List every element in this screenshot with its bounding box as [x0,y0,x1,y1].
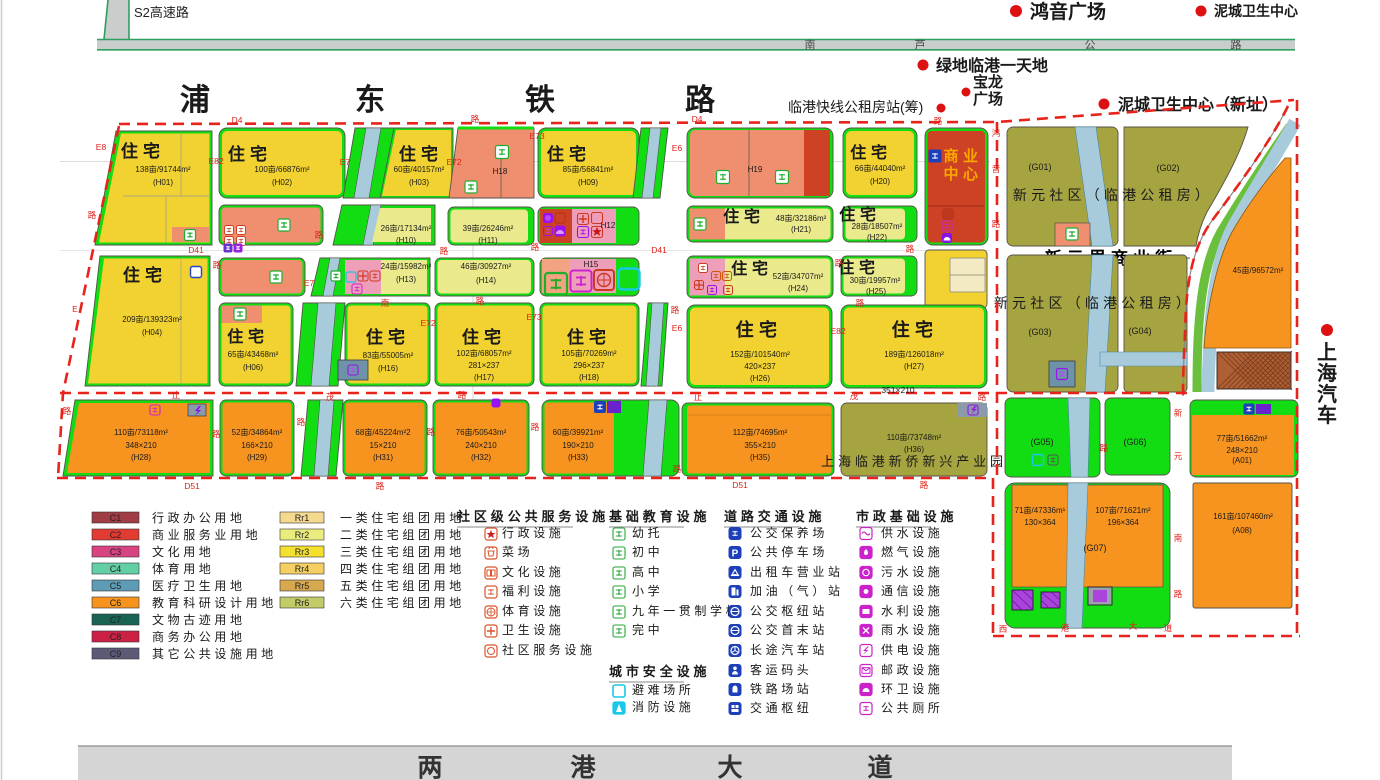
svg-text:城市安全设施: 城市安全设施 [609,664,710,679]
svg-text:中心: 中心 [943,165,982,183]
svg-text:住宅: 住宅 [366,327,410,347]
svg-text:(H14): (H14) [476,276,496,285]
svg-text:南: 南 [805,39,816,52]
svg-text:83亩/55005m²: 83亩/55005m² [363,350,414,360]
svg-text:296×237: 296×237 [573,361,605,370]
svg-text:(H16): (H16) [378,364,398,373]
svg-text:H19: H19 [748,165,763,174]
svg-text:(H31): (H31) [373,453,393,462]
svg-text:(G06): (G06) [1123,437,1146,447]
svg-text:路: 路 [376,481,385,491]
svg-text:(H03): (H03) [409,178,429,187]
svg-text:C2: C2 [110,530,122,540]
svg-text:一类住宅组团用地: 一类住宅组团用地 [340,510,465,525]
svg-text:上海临港新侨新兴产业园: 上海临港新侨新兴产业园 [821,454,1007,469]
svg-text:住宅: 住宅 [736,319,783,340]
svg-text:南: 南 [1174,533,1183,543]
svg-text:E8: E8 [96,142,107,152]
svg-text:供电设施: 供电设施 [881,643,943,657]
svg-text:小学: 小学 [632,583,663,598]
svg-text:大: 大 [1129,621,1138,631]
svg-text:止: 止 [172,390,181,400]
svg-text:路: 路 [934,116,943,126]
svg-text:C5: C5 [110,581,122,591]
svg-text:车: 车 [1317,403,1337,427]
svg-text:(H11): (H11) [478,236,498,245]
svg-text:医疗卫生用地: 医疗卫生用地 [152,579,246,593]
svg-text:路: 路 [531,242,540,252]
svg-text:幼托: 幼托 [632,526,663,540]
svg-text:110亩/73748m²: 110亩/73748m² [887,432,942,442]
svg-text:路: 路 [685,84,716,117]
svg-text:E7: E7 [340,157,351,167]
svg-text:住宅: 住宅 [121,141,165,161]
svg-text:C9: C9 [110,649,122,659]
svg-text:(G05): (G05) [1030,437,1053,447]
svg-text:南: 南 [381,298,390,308]
svg-text:新: 新 [1174,408,1183,418]
svg-text:130×364: 130×364 [1024,518,1056,527]
svg-text:路: 路 [458,390,467,400]
svg-text:公: 公 [1085,40,1096,52]
svg-text:公共停车场: 公共停车场 [750,544,828,559]
svg-text:E73: E73 [529,131,544,141]
svg-text:住宅: 住宅 [850,143,892,162]
svg-text:道路交通设施: 道路交通设施 [724,509,825,524]
svg-text:107亩/71621m²: 107亩/71621m² [1095,505,1150,515]
svg-text:46亩/30927m²: 46亩/30927m² [461,261,512,271]
svg-text:道: 道 [867,753,892,780]
svg-text:D51: D51 [184,481,200,491]
svg-text:C1: C1 [110,513,122,523]
svg-text:(G03): (G03) [1028,327,1051,337]
svg-text:路: 路 [673,464,682,474]
svg-text:420×237: 420×237 [744,362,776,371]
svg-text:邮政设施: 邮政设施 [881,663,943,677]
svg-text:公交保养场: 公交保养场 [750,525,828,540]
svg-text:道: 道 [1164,623,1173,633]
svg-text:体育用地: 体育用地 [152,561,214,576]
svg-text:E72: E72 [446,157,461,167]
svg-text:Rr1: Rr1 [295,513,310,523]
svg-text:体育设施: 体育设施 [502,603,564,618]
svg-text:商务办公用地: 商务办公用地 [152,629,246,644]
svg-text:(G04): (G04) [1128,326,1151,336]
svg-text:D51: D51 [732,480,748,490]
svg-text:其它公共设施用地: 其它公共设施用地 [152,646,277,661]
svg-text:住宅: 住宅 [838,258,880,277]
svg-text:绿地临港一天地: 绿地临港一天地 [936,56,1048,75]
svg-text:住宅: 住宅 [547,144,591,164]
svg-text:209亩/139323m²: 209亩/139323m² [122,314,182,324]
svg-text:(A08): (A08) [1232,526,1252,535]
svg-text:住宅: 住宅 [123,265,167,285]
svg-text:加油（气）站: 加油（气）站 [750,583,844,598]
svg-text:76亩/50543m²: 76亩/50543m² [456,427,507,437]
svg-text:卫生设施: 卫生设施 [502,623,564,637]
svg-text:65亩/43468m²: 65亩/43468m² [228,349,279,359]
svg-text:路: 路 [920,480,929,490]
svg-text:D4: D4 [232,115,243,125]
svg-text:长途汽车站: 长途汽车站 [750,642,828,657]
svg-text:市政基础设施: 市政基础设施 [856,509,957,524]
svg-text:(H21): (H21) [791,225,811,234]
svg-text:(H09): (H09) [578,178,598,187]
svg-text:基础教育设施: 基础教育设施 [608,509,710,524]
svg-text:E82: E82 [208,156,223,166]
svg-text:商业服务业用地: 商业服务业用地 [152,527,261,542]
svg-text:元: 元 [1174,451,1183,461]
svg-text:351×210: 351×210 [881,385,915,395]
svg-text:路: 路 [1231,39,1242,52]
svg-text:Rr2: Rr2 [295,530,310,540]
svg-text:(H32): (H32) [471,453,491,462]
svg-text:鸿音广场: 鸿音广场 [1030,0,1106,23]
svg-text:新元社区（临港公租房）: 新元社区（临港公租房） [1013,187,1213,203]
svg-text:避难场所: 避难场所 [632,683,694,697]
svg-text:东: 东 [355,83,385,117]
svg-text:C6: C6 [110,598,122,608]
svg-text:E6: E6 [672,323,683,333]
svg-text:(H27): (H27) [904,362,924,371]
svg-text:45亩/96572m²: 45亩/96572m² [1233,265,1284,275]
svg-text:240×210: 240×210 [465,441,497,450]
svg-text:E: E [72,304,78,314]
svg-text:C8: C8 [110,632,122,642]
svg-text:110亩/73118m²: 110亩/73118m² [114,427,168,437]
svg-text:(H18): (H18) [579,373,599,382]
svg-text:教育科研设计用地: 教育科研设计用地 [152,595,277,610]
svg-text:行政办公用地: 行政办公用地 [152,510,246,525]
svg-text:通信设施: 通信设施 [881,584,943,598]
svg-text:24亩/15982m²: 24亩/15982m² [381,261,432,271]
svg-text:住宅: 住宅 [731,259,773,278]
svg-text:(H04): (H04) [142,328,162,337]
svg-text:大: 大 [717,754,742,780]
svg-text:高中: 高中 [632,564,663,579]
svg-text:路: 路 [978,392,987,402]
svg-text:100亩/66876m²: 100亩/66876m² [254,164,309,174]
svg-text:105亩/70269m²: 105亩/70269m² [561,348,616,358]
svg-text:C3: C3 [110,547,122,557]
svg-text:(H36): (H36) [904,445,924,454]
svg-text:止: 止 [694,392,703,402]
svg-text:铁: 铁 [525,84,555,117]
svg-text:消防设施: 消防设施 [632,699,694,714]
svg-text:路: 路 [906,244,915,254]
svg-text:泥城卫生中心（新址）: 泥城卫生中心（新址） [1118,95,1278,114]
svg-text:(H29): (H29) [247,453,267,462]
svg-text:客运码头: 客运码头 [750,662,812,677]
svg-text:广场: 广场 [973,90,1003,108]
svg-text:茂: 茂 [326,392,335,402]
svg-text:E82: E82 [830,326,845,336]
svg-text:52亩/34864m²: 52亩/34864m² [232,427,283,437]
svg-text:60亩/39921m²: 60亩/39921m² [553,427,604,437]
svg-text:西: 西 [999,624,1008,634]
svg-text:六类住宅组团用地: 六类住宅组团用地 [340,595,465,610]
svg-text:路: 路 [315,230,324,240]
svg-text:(H20): (H20) [870,177,890,186]
svg-text:(H22): (H22) [867,233,887,242]
svg-text:85亩/56841m²: 85亩/56841m² [563,164,614,174]
svg-text:路: 路 [531,422,540,432]
svg-text:(H10): (H10) [396,236,416,245]
svg-text:路: 路 [992,219,1001,229]
svg-text:铁路场站: 铁路场站 [750,681,812,696]
svg-text:污水设施: 污水设施 [881,565,943,579]
svg-text:五类住宅组团用地: 五类住宅组团用地 [340,578,465,593]
svg-text:路: 路 [1174,589,1183,599]
svg-text:E7: E7 [304,278,315,288]
svg-text:港: 港 [570,753,596,780]
svg-text:D4: D4 [692,114,703,124]
svg-text:路: 路 [856,298,865,308]
svg-text:三类住宅组团用地: 三类住宅组团用地 [340,544,465,559]
svg-text:189亩/126018m²: 189亩/126018m² [884,349,944,359]
svg-text:水利设施: 水利设施 [881,604,943,618]
svg-text:166×210: 166×210 [241,441,273,450]
svg-text:泥城卫生中心: 泥城卫生中心 [1214,3,1298,19]
svg-text:71亩/47336m¹: 71亩/47336m¹ [1015,505,1066,515]
svg-text:芦: 芦 [915,39,926,52]
svg-text:公交枢纽站: 公交枢纽站 [750,603,828,618]
svg-text:二类住宅组团用地: 二类住宅组团用地 [340,527,465,542]
svg-text:公共厕所: 公共厕所 [881,701,943,715]
svg-text:路: 路 [835,258,844,268]
svg-text:(H35): (H35) [750,453,770,462]
svg-text:E73: E73 [526,312,541,322]
svg-text:住宅: 住宅 [892,319,939,340]
svg-text:(G01): (G01) [1028,162,1051,172]
svg-text:(H13): (H13) [396,275,416,284]
svg-text:(H26): (H26) [750,374,770,383]
svg-text:菜场: 菜场 [502,545,533,559]
svg-text:D41: D41 [188,245,204,255]
svg-text:音: 音 [992,164,1001,174]
svg-text:(A01): (A01) [1232,456,1252,465]
svg-text:行政设施: 行政设施 [502,526,564,540]
svg-text:社区级公共服务设施: 社区级公共服务设施 [456,509,609,524]
svg-text:鸿: 鸿 [992,128,1001,138]
svg-text:社区服务设施: 社区服务设施 [502,642,596,657]
svg-text:(G02): (G02) [1156,163,1179,173]
svg-text:交通枢纽: 交通枢纽 [750,700,812,715]
svg-text:(H01): (H01) [153,178,173,187]
svg-text:路: 路 [1100,443,1109,453]
svg-text:路: 路 [671,305,680,315]
svg-text:路: 路 [427,427,436,437]
svg-text:初中: 初中 [632,544,663,559]
svg-text:112亩/74695m²: 112亩/74695m² [733,427,788,437]
svg-text:Rr3: Rr3 [295,547,310,557]
svg-text:住宅: 住宅 [227,327,269,346]
svg-text:住宅: 住宅 [228,144,272,164]
svg-text:九年一贯制学校: 九年一贯制学校 [632,603,741,618]
svg-text:住宅: 住宅 [462,327,506,347]
svg-text:H18: H18 [493,167,508,176]
svg-text:30亩/19957m²: 30亩/19957m² [850,275,901,285]
svg-text:S2高速路: S2高速路 [134,5,189,20]
svg-text:52亩/34707m²: 52亩/34707m² [773,271,824,281]
svg-text:茂: 茂 [850,391,859,401]
svg-text:E6: E6 [672,143,683,153]
svg-text:浦: 浦 [180,84,210,117]
svg-text:海: 海 [1317,361,1337,385]
svg-text:路: 路 [476,296,485,306]
svg-text:路: 路 [63,406,72,416]
svg-text:H12: H12 [601,221,616,230]
svg-text:C7: C7 [110,615,122,625]
svg-text:路: 路 [471,114,480,124]
svg-text:(G07): (G07) [1083,543,1106,553]
svg-text:138亩/91744m²: 138亩/91744m² [135,164,190,174]
svg-text:港: 港 [1061,623,1070,633]
svg-text:Rr6: Rr6 [295,598,310,608]
svg-text:66亩/44040m²: 66亩/44040m² [855,163,906,173]
svg-text:文化用地: 文化用地 [152,544,214,559]
svg-text:Rr5: Rr5 [295,581,310,591]
svg-text:宝龙: 宝龙 [973,73,1003,91]
svg-text:P: P [732,548,739,559]
svg-text:68亩/45224m²2: 68亩/45224m²2 [355,427,411,437]
svg-text:两: 两 [417,754,442,780]
svg-text:Rr4: Rr4 [295,564,310,574]
svg-text:福利设施: 福利设施 [502,583,564,598]
svg-text:路: 路 [213,260,222,270]
svg-text:355×210: 355×210 [744,441,776,450]
svg-text:281×237: 281×237 [468,361,500,370]
svg-text:新元社区（临港公租房）: 新元社区（临港公租房） [994,295,1194,311]
svg-text:152亩/101540m²: 152亩/101540m² [730,349,790,359]
svg-text:48亩/32186m²: 48亩/32186m² [776,213,827,223]
svg-text:(H06): (H06) [243,363,263,372]
svg-text:四类住宅组团用地: 四类住宅组团用地 [340,561,465,576]
svg-text:文物古迹用地: 文物古迹用地 [152,612,246,627]
svg-text:348×210: 348×210 [125,441,157,450]
svg-text:出租车营业站: 出租车营业站 [750,564,844,579]
svg-text:248×210: 248×210 [1226,446,1258,455]
svg-text:住宅: 住宅 [567,327,611,347]
svg-text:77亩/51662m²: 77亩/51662m² [1217,433,1268,443]
svg-text:39亩/26246m²: 39亩/26246m² [463,223,514,233]
svg-text:雨水设施: 雨水设施 [881,623,943,637]
svg-text:(H33): (H33) [568,453,588,462]
svg-text:C4: C4 [110,564,122,574]
svg-text:(H24): (H24) [788,284,808,293]
svg-text:完中: 完中 [632,622,663,637]
svg-text:环卫设施: 环卫设施 [881,682,943,696]
svg-text:路: 路 [297,417,306,427]
svg-text:60亩/40157m²: 60亩/40157m² [394,164,445,174]
svg-text:路: 路 [440,246,449,256]
svg-text:路: 路 [88,210,97,220]
svg-text:文化设施: 文化设施 [502,564,564,579]
svg-text:D41: D41 [651,245,667,255]
svg-text:28亩/18507m²: 28亩/18507m² [852,221,903,231]
svg-text:E72: E72 [420,318,435,328]
svg-text:(H25): (H25) [866,287,886,296]
svg-text:(H28): (H28) [131,453,151,462]
svg-text:住宅: 住宅 [723,207,765,226]
svg-text:上: 上 [1317,341,1337,364]
svg-text:102亩/68057m²: 102亩/68057m² [456,348,511,358]
svg-text:临港快线公租房站(筹): 临港快线公租房站(筹) [788,99,923,115]
svg-text:公交首末站: 公交首末站 [750,622,828,637]
svg-text:(H17): (H17) [474,373,494,382]
svg-text:26亩/17134m²: 26亩/17134m² [381,223,432,233]
svg-text:路: 路 [212,429,221,439]
svg-text:商业: 商业 [943,147,982,165]
svg-text:H15: H15 [584,260,599,269]
svg-text:15×210: 15×210 [370,441,397,450]
svg-text:161亩/107460m²: 161亩/107460m² [1213,511,1273,521]
svg-text:汽: 汽 [1317,382,1337,406]
svg-text:190×210: 190×210 [562,441,594,450]
svg-text:燃气设施: 燃气设施 [881,544,943,559]
svg-text:供水设施: 供水设施 [881,526,943,540]
svg-text:196×364: 196×364 [1107,518,1139,527]
svg-text:住宅: 住宅 [399,144,443,164]
svg-text:(H02): (H02) [272,178,292,187]
